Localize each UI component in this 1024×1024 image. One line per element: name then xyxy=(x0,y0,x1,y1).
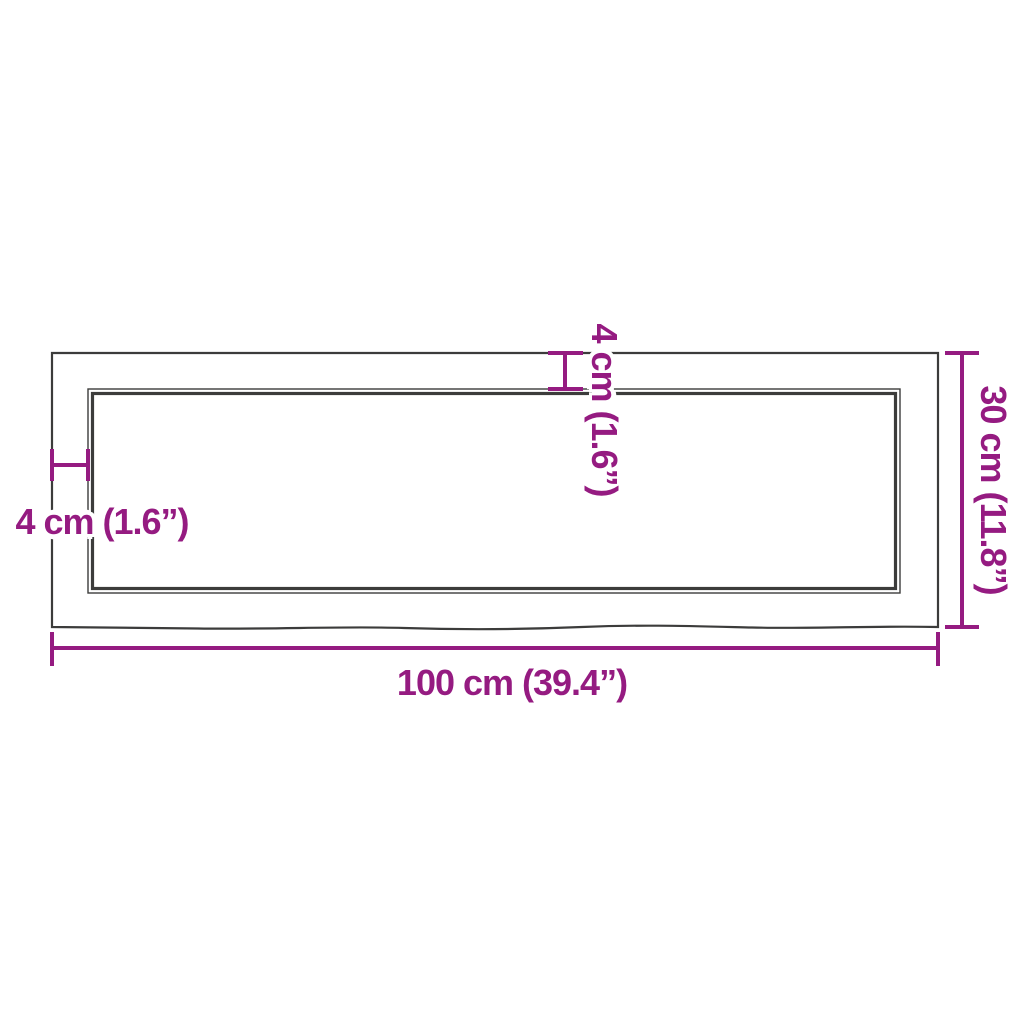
label-height-right: 30 cm (11.8”) xyxy=(972,385,1014,594)
label-thickness-top: 4 cm (1.6”) xyxy=(583,323,625,496)
dim-width-bottom xyxy=(52,632,938,666)
dim-thickness-top xyxy=(548,353,583,389)
label-thickness-left: 4 cm (1.6”) xyxy=(15,501,188,543)
dim-thickness-left xyxy=(52,449,88,481)
dimension-diagram: 4 cm (1.6”) 4 cm (1.6”) 30 cm (11.8”) 10… xyxy=(0,0,1024,1024)
label-width-bottom: 100 cm (39.4”) xyxy=(397,662,627,704)
board-inner-edge-thick xyxy=(93,394,896,589)
board-inner-edge-thin xyxy=(88,389,900,593)
